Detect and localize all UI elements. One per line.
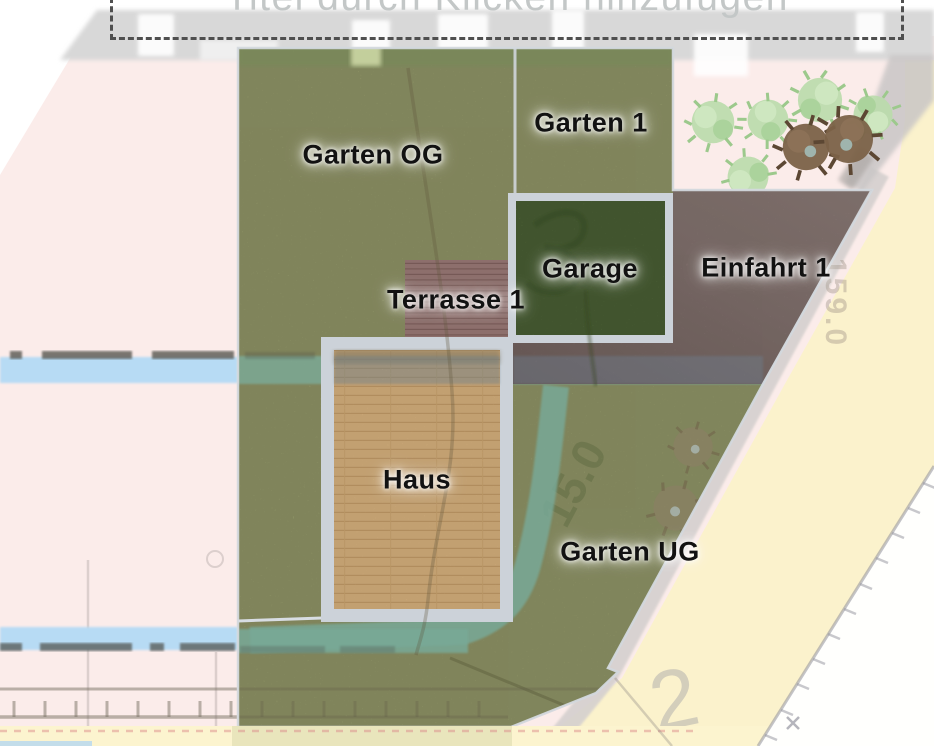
garden-planner-canvas: 159.0 2 15.0 — [0, 0, 934, 746]
zone-terrasse[interactable] — [405, 260, 509, 337]
zone-garten-1[interactable] — [515, 48, 673, 190]
title-placeholder-text[interactable]: Titel durch Klicken hinzufügen — [113, 0, 901, 20]
site-plan: 159.0 2 15.0 — [0, 0, 934, 746]
title-placeholder-box[interactable]: Titel durch Klicken hinzufügen — [110, 0, 904, 40]
zone-haus[interactable] — [321, 337, 513, 622]
